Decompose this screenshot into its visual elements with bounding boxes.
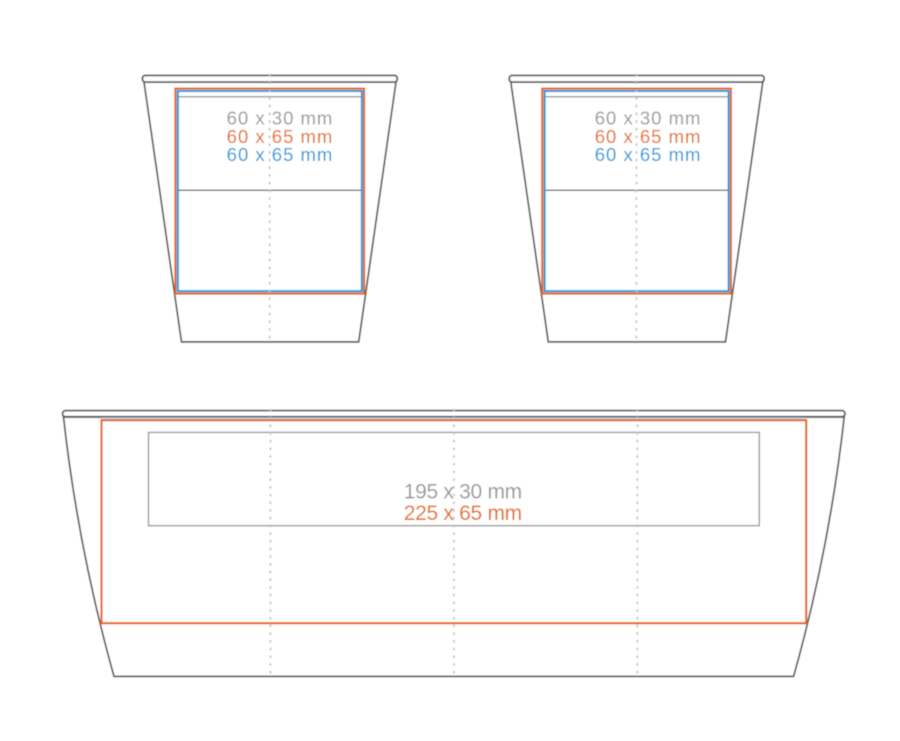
svg-text:60 x 65 mm: 60 x 65 mm <box>595 144 702 165</box>
svg-text:225 x 65 mm: 225 x 65 mm <box>404 502 522 525</box>
svg-text:195 x 30 mm: 195 x 30 mm <box>404 481 522 504</box>
svg-text:60 x 65 mm: 60 x 65 mm <box>227 144 334 165</box>
